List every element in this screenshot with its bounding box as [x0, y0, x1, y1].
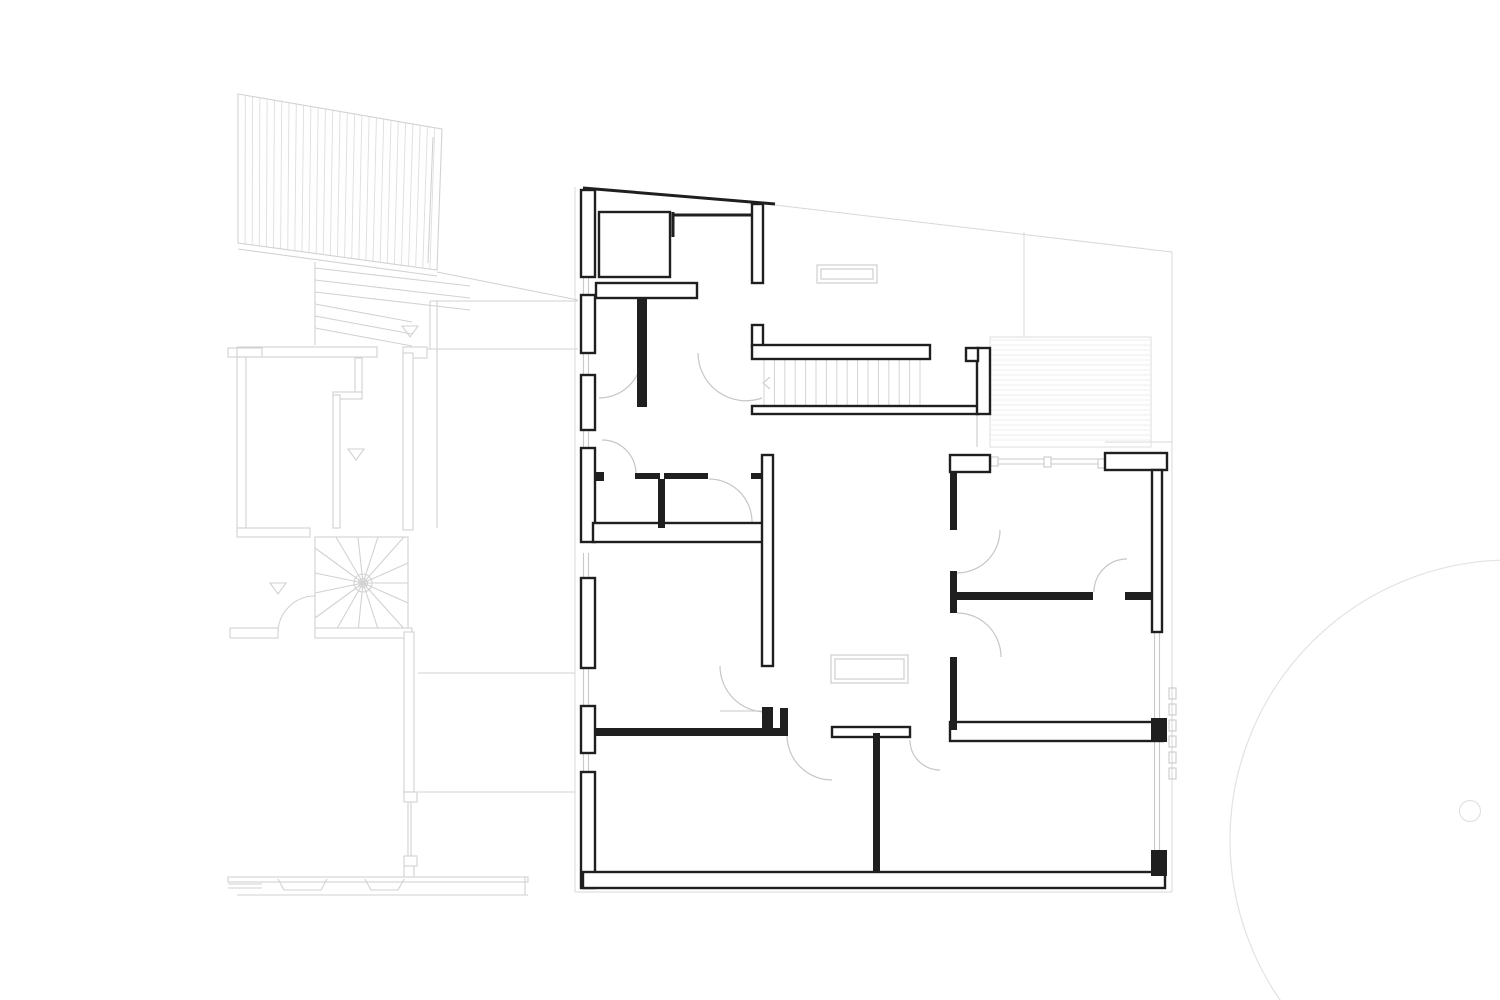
door-swings	[599, 353, 1127, 780]
site-circles	[1230, 560, 1500, 1000]
terrace-hatch	[991, 340, 1150, 440]
stair-treads	[764, 360, 920, 406]
context-roof-hatch	[245, 95, 435, 269]
floor-plan-drawing	[0, 0, 1500, 1000]
floor-plan-page	[0, 0, 1500, 1000]
